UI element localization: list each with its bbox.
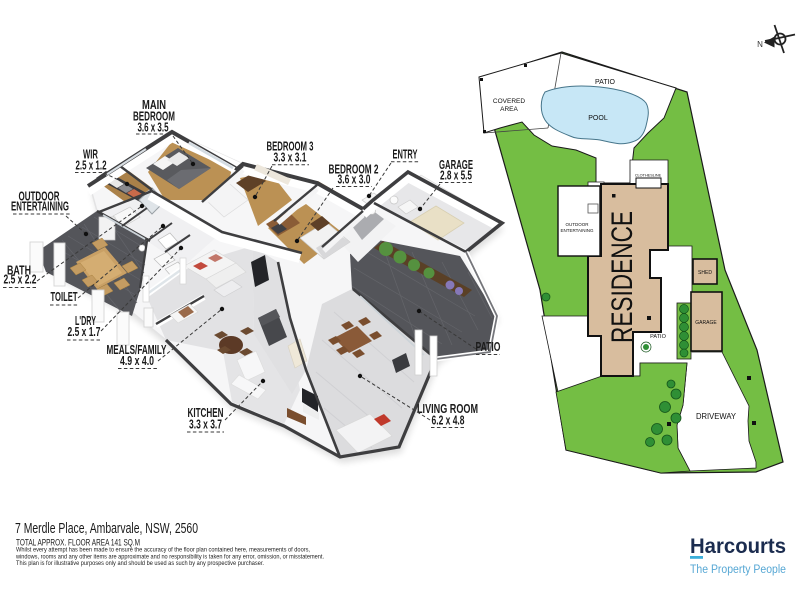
- svg-text:SHED: SHED: [698, 270, 712, 276]
- svg-text:DRIVEWAY: DRIVEWAY: [696, 411, 736, 421]
- svg-text:2.8 x 5.5: 2.8 x 5.5: [440, 169, 472, 183]
- svg-text:This plan is for illustrative: This plan is for illustrative purposes o…: [16, 560, 264, 567]
- svg-text:3.6 x 3.5: 3.6 x 3.5: [138, 121, 169, 135]
- svg-text:COVERED: COVERED: [493, 98, 525, 105]
- svg-text:N: N: [757, 40, 763, 49]
- svg-text:ENTRY: ENTRY: [393, 148, 418, 162]
- svg-text:ENTERTAINING: ENTERTAINING: [560, 228, 594, 233]
- svg-text:3.6 x 3.0: 3.6 x 3.0: [338, 173, 371, 187]
- svg-text:2.5 x 2.2: 2.5 x 2.2: [4, 273, 37, 287]
- svg-text:PATIO: PATIO: [595, 79, 616, 86]
- svg-text:TOILET: TOILET: [51, 290, 78, 304]
- svg-text:4.9 x 4.0: 4.9 x 4.0: [120, 354, 154, 368]
- svg-text:The Property People: The Property People: [690, 564, 786, 576]
- svg-text:6.2 x 4.8: 6.2 x 4.8: [432, 414, 465, 428]
- svg-text:POOL: POOL: [588, 115, 608, 122]
- svg-text:AREA: AREA: [500, 106, 518, 113]
- svg-text:CLOTHESLINE: CLOTHESLINE: [635, 174, 662, 178]
- svg-text:Harcourts: Harcourts: [690, 535, 786, 558]
- svg-text:PATIO: PATIO: [650, 334, 666, 340]
- svg-text:ENTERTAINING: ENTERTAINING: [11, 200, 69, 214]
- svg-text:3.3 x 3.1: 3.3 x 3.1: [274, 150, 307, 164]
- svg-text:RESIDENCE: RESIDENCE: [606, 211, 639, 343]
- svg-text:2.5 x 1.7: 2.5 x 1.7: [68, 325, 101, 339]
- svg-text:3.3 x 3.7: 3.3 x 3.7: [189, 418, 222, 432]
- svg-text:OUTDOOR: OUTDOOR: [566, 222, 590, 227]
- svg-text:PATIO: PATIO: [476, 340, 501, 354]
- svg-text:2.5 x 1.2: 2.5 x 1.2: [76, 159, 107, 173]
- svg-text:GARAGE: GARAGE: [695, 320, 717, 326]
- svg-text:Whilst every attempt has been: Whilst every attempt has been made to en…: [16, 547, 310, 554]
- svg-text:7 Merdle Place, Ambarvale, NSW: 7 Merdle Place, Ambarvale, NSW, 2560: [15, 521, 198, 537]
